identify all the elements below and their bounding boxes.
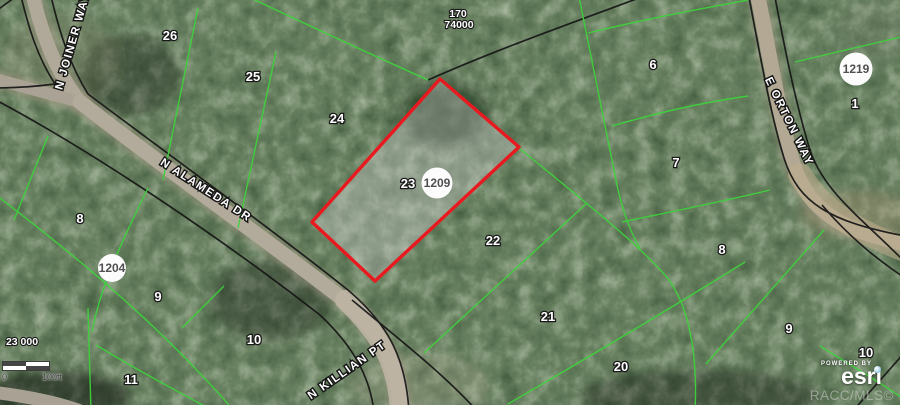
parcel-number-label: 9 xyxy=(154,289,161,304)
parcel-number-label: 11 xyxy=(124,372,138,387)
corner-ref-label: 23 000 xyxy=(6,336,38,348)
parcel-number-label: 7 xyxy=(672,155,679,170)
parcel-marker-1204[interactable]: 1204 xyxy=(98,254,126,282)
parcel-number-label: 8 xyxy=(718,242,725,257)
parcel-number-label: 21 xyxy=(541,309,555,324)
parcel-number-label: 8 xyxy=(76,211,83,226)
parcel-number-label: 10 xyxy=(247,332,261,347)
parcel-number-label: 10 xyxy=(859,345,873,360)
parcel-number-label: 23 xyxy=(401,176,415,191)
esri-globe-dot-icon xyxy=(874,366,881,373)
parcel-number-label: 9 xyxy=(785,321,792,336)
parcel-marker-1219[interactable]: 1219 xyxy=(840,53,873,86)
scale-distance-label: 100ft xyxy=(42,372,62,382)
parcel-number-label: 26 xyxy=(163,28,177,43)
map-attribution: RACC/MLS© POWERED BY esri xyxy=(774,359,894,403)
parcel-marker-1209[interactable]: 1209 xyxy=(422,168,453,199)
parcel-number-label: 20 xyxy=(614,359,628,374)
parcel-number-label: 22 xyxy=(486,233,500,248)
parcel-marker-label: 1204 xyxy=(99,261,126,275)
map-svg: N JOINER WAY N ALAMEDA DR N KILLIAN PT E… xyxy=(0,0,900,405)
parcel-marker-label: 1219 xyxy=(843,62,870,76)
map-canvas[interactable]: N JOINER WAY N ALAMEDA DR N KILLIAN PT E… xyxy=(0,0,900,405)
scale-zero-label: 0 xyxy=(2,372,7,382)
top-address-line2: 74000 xyxy=(444,19,473,31)
map-scale-bar: 0 100ft xyxy=(2,361,82,382)
parcel-number-label: 25 xyxy=(246,69,260,84)
parcel-number-label: 1 xyxy=(851,96,858,111)
parcel-marker-label: 1209 xyxy=(424,176,451,190)
parcel-number-label: 6 xyxy=(649,57,656,72)
mls-attribution-label: RACC/MLS© xyxy=(810,388,894,403)
parcel-number-label: 24 xyxy=(330,111,345,126)
scale-bar-segments xyxy=(2,361,50,371)
